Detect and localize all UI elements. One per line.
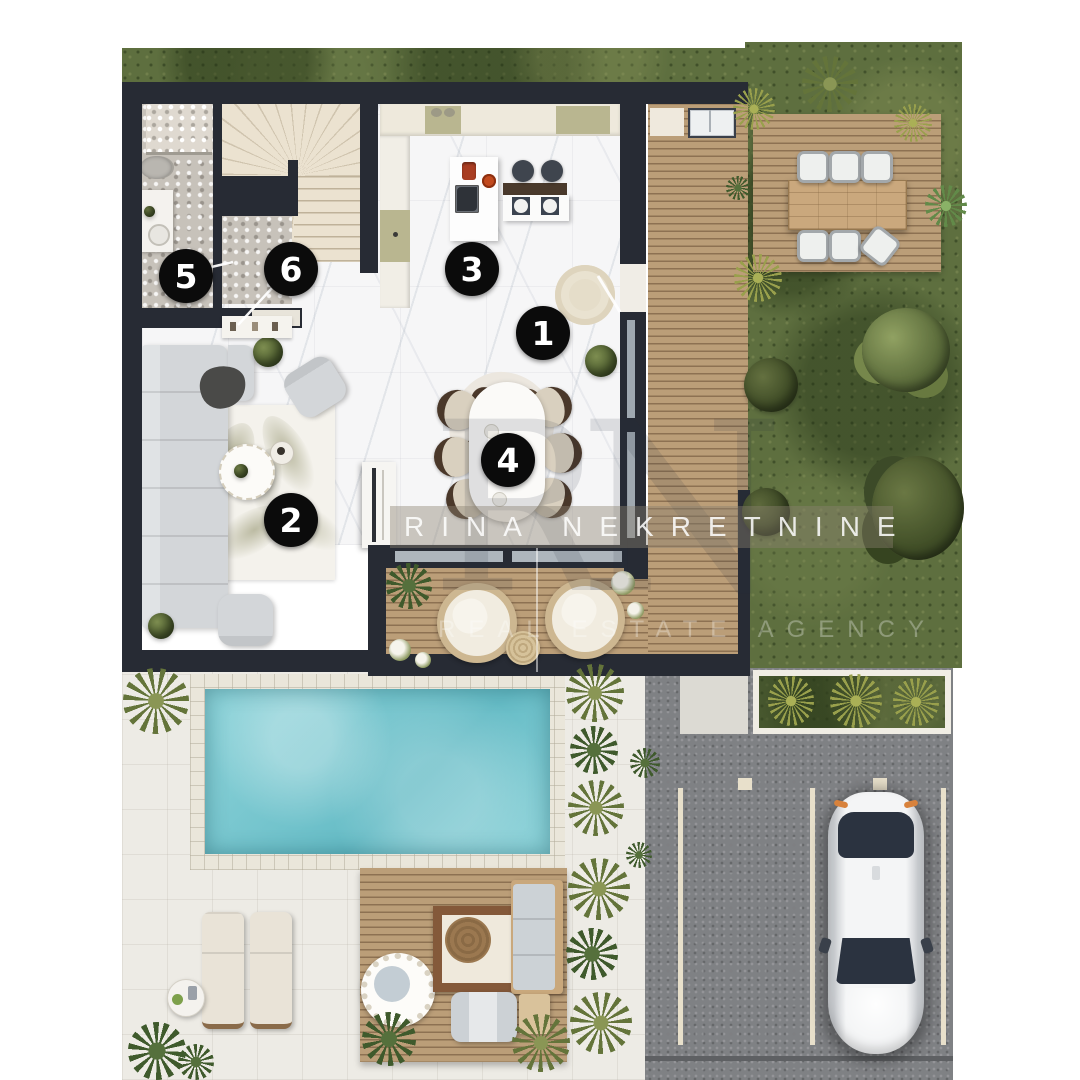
room-marker-1: 1 [516, 306, 570, 360]
room-marker-2: 2 [264, 493, 318, 547]
floor-plan-render: RN RINA NEKRETNINE REAL ESTATE AGENCY 1 … [0, 0, 1080, 1080]
room-marker-5: 5 [159, 249, 213, 303]
room-marker-4: 4 [481, 433, 535, 487]
entry-door-leaf [598, 276, 620, 312]
room-marker-3: 3 [445, 242, 499, 296]
leader-line-6 [238, 288, 272, 325]
annotation-lines [0, 0, 1080, 1080]
room-marker-6: 6 [264, 242, 318, 296]
